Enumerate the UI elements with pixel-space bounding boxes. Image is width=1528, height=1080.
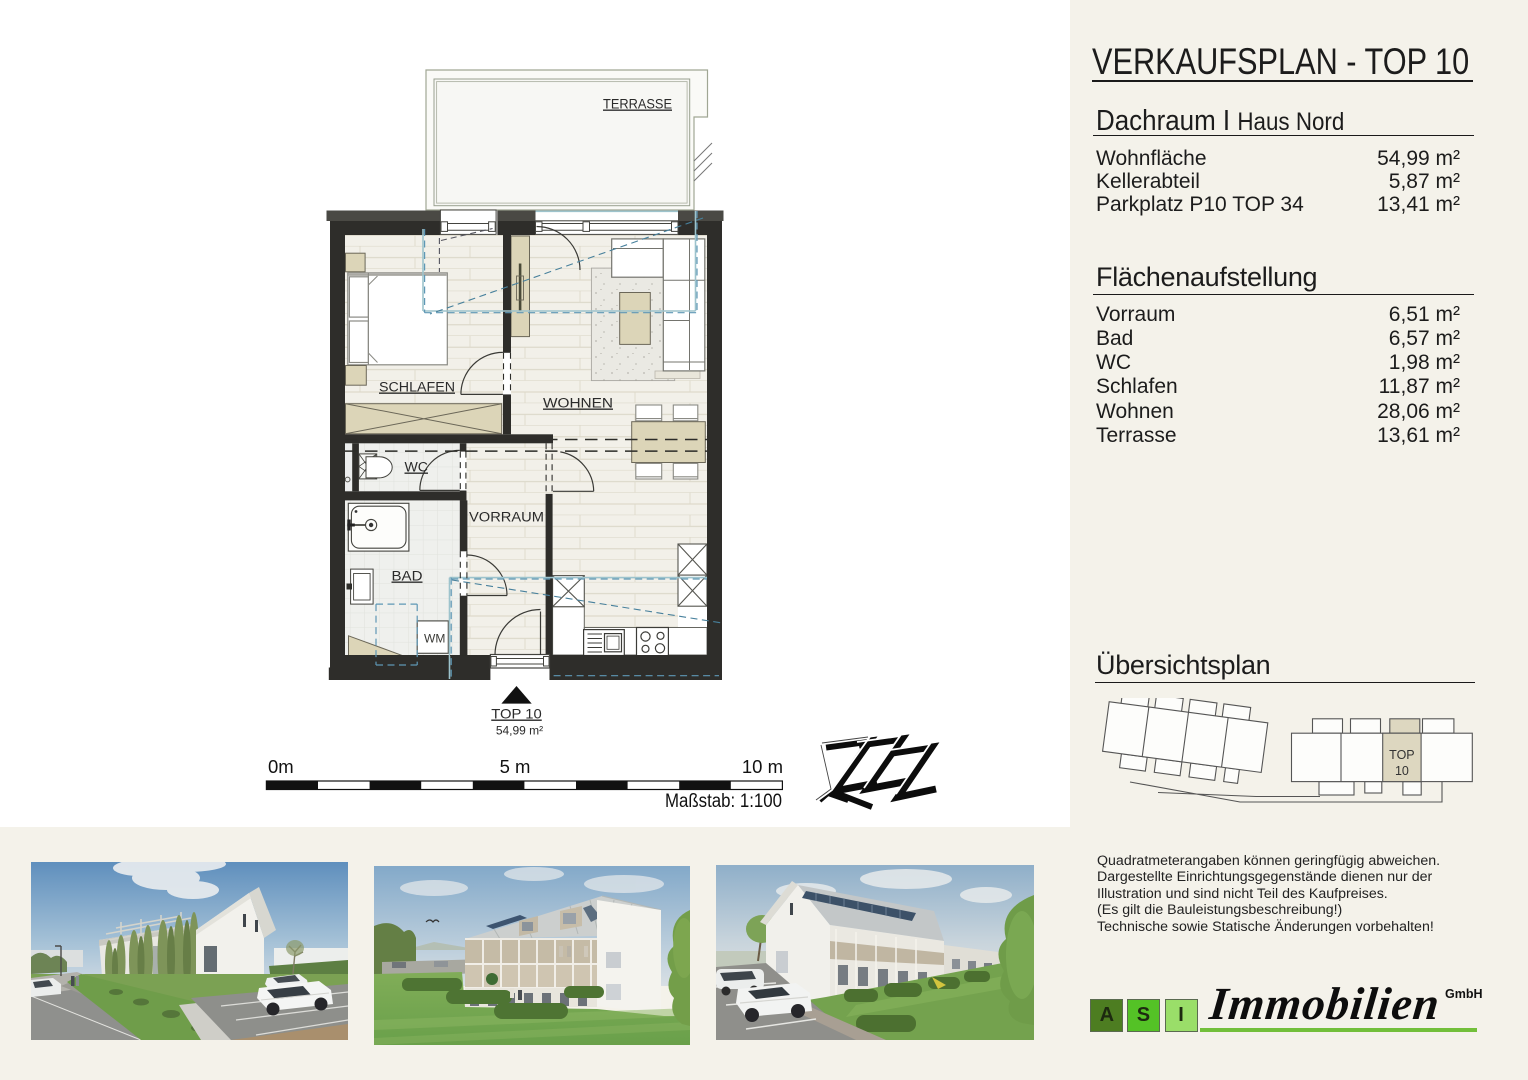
svg-text:TERRASSE: TERRASSE: [603, 97, 672, 112]
svg-text:54,99 m²: 54,99 m²: [496, 724, 543, 738]
svg-text:10 m: 10 m: [742, 756, 783, 777]
svg-text:VORRAUM: VORRAUM: [469, 510, 544, 525]
svg-text:TOP 10: TOP 10: [491, 706, 542, 722]
svg-text:SCHLAFEN: SCHLAFEN: [379, 380, 455, 395]
svg-text:WC: WC: [405, 460, 429, 475]
svg-text:0m: 0m: [268, 756, 294, 777]
svg-text:Maßstab: 1:100: Maßstab: 1:100: [665, 791, 782, 812]
svg-text:BAD: BAD: [392, 569, 423, 584]
svg-text:WOHNEN: WOHNEN: [543, 396, 613, 411]
svg-text:TOP: TOP: [1389, 748, 1414, 762]
svg-text:WM: WM: [424, 632, 445, 646]
svg-text:10: 10: [1395, 764, 1409, 778]
svg-text:5 m: 5 m: [500, 756, 531, 777]
